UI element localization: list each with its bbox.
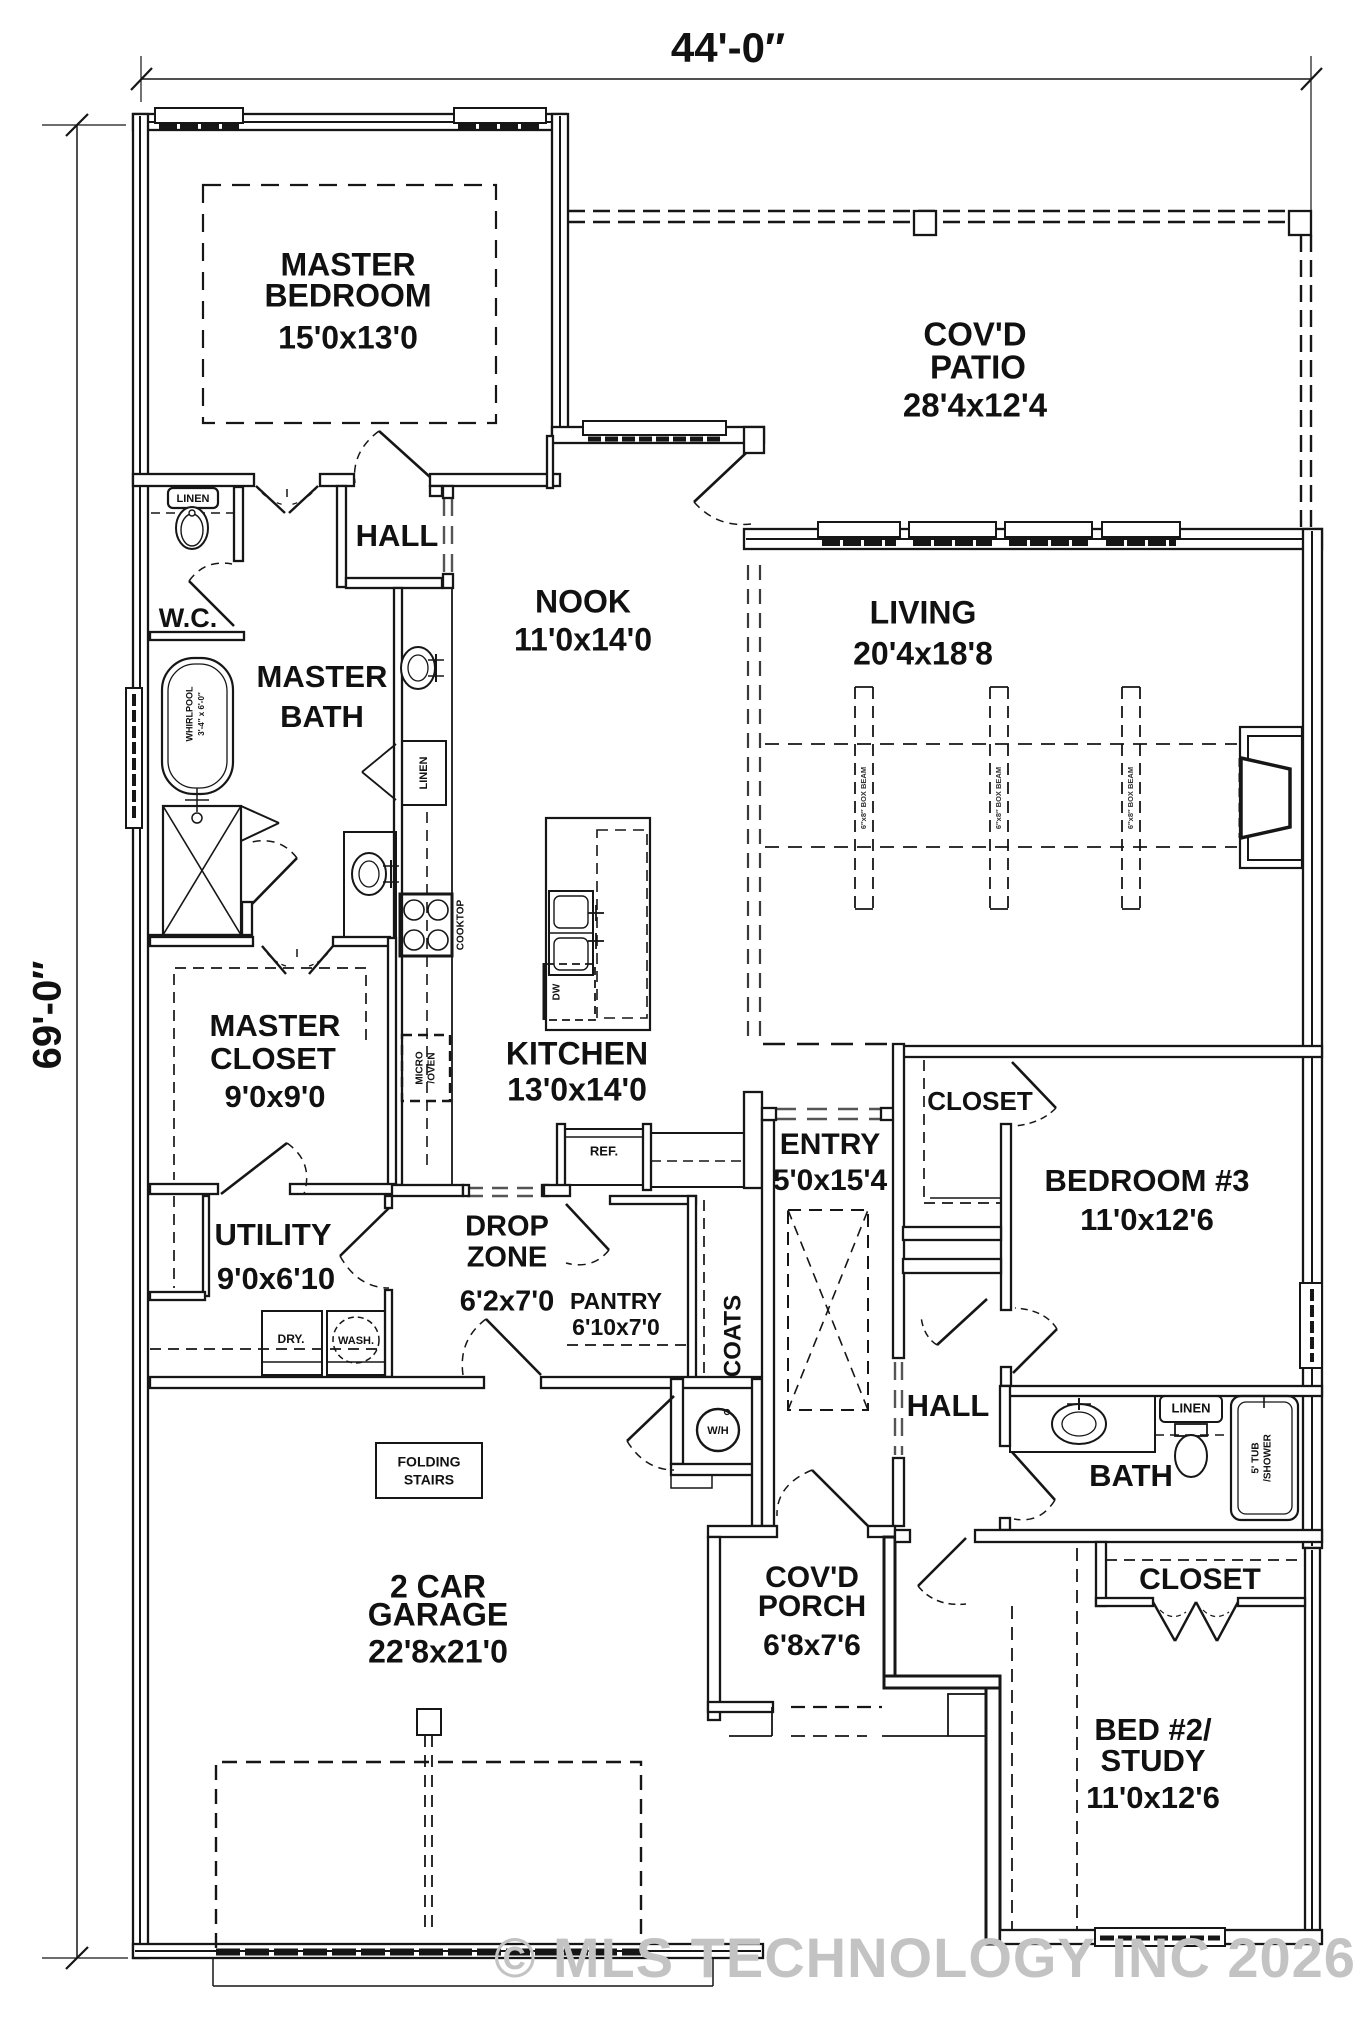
- svg-text:/OVEN: /OVEN: [427, 1052, 438, 1083]
- svg-text:LINEN: LINEN: [418, 756, 430, 789]
- svg-text:6'8x7'6: 6'8x7'6: [763, 1629, 861, 1662]
- svg-text:PORCH: PORCH: [758, 1590, 866, 1623]
- svg-text:11'0x14'0: 11'0x14'0: [514, 621, 652, 657]
- svg-text:CLOSET: CLOSET: [927, 1086, 1033, 1116]
- svg-text:MASTER: MASTER: [210, 1008, 341, 1043]
- svg-text:ENTRY: ENTRY: [780, 1128, 881, 1161]
- svg-text:6″x8″ BOX BEAM: 6″x8″ BOX BEAM: [859, 767, 868, 829]
- svg-text:STAIRS: STAIRS: [404, 1472, 454, 1488]
- svg-text:44'-0″: 44'-0″: [671, 24, 785, 71]
- svg-text:© MLS TECHNOLOGY INC 2026: © MLS TECHNOLOGY INC 2026: [494, 1926, 1356, 1989]
- svg-text:BED #2/: BED #2/: [1094, 1712, 1212, 1747]
- svg-text:CLOSET: CLOSET: [210, 1041, 336, 1076]
- svg-text:9'0x9'0: 9'0x9'0: [225, 1079, 326, 1114]
- svg-text:CLOSET: CLOSET: [1139, 1563, 1261, 1596]
- svg-text:PANTRY: PANTRY: [570, 1288, 662, 1314]
- svg-text:9'0x6'10: 9'0x6'10: [217, 1261, 335, 1296]
- svg-text:69'-0″: 69'-0″: [26, 961, 70, 1070]
- svg-text:KITCHEN: KITCHEN: [506, 1035, 648, 1071]
- svg-text:WHIRLPOOL: WHIRLPOOL: [184, 686, 194, 741]
- svg-text:20'4x18'8: 20'4x18'8: [853, 635, 993, 671]
- svg-text:HALL: HALL: [907, 1388, 990, 1423]
- svg-text:STUDY: STUDY: [1100, 1743, 1205, 1778]
- svg-text:BATH: BATH: [1089, 1458, 1173, 1493]
- svg-text:11'0x12'6: 11'0x12'6: [1086, 1780, 1220, 1815]
- svg-text:6'2x7'0: 6'2x7'0: [460, 1286, 554, 1318]
- svg-text:15'0x13'0: 15'0x13'0: [278, 319, 418, 355]
- svg-text:28'4x12'4: 28'4x12'4: [903, 387, 1048, 424]
- svg-text:BATH: BATH: [280, 699, 364, 734]
- svg-text:WASH.: WASH.: [338, 1335, 374, 1347]
- svg-text:UTILITY: UTILITY: [214, 1217, 331, 1252]
- svg-text:11'0x12'6: 11'0x12'6: [1080, 1202, 1214, 1237]
- svg-text:FOLDING: FOLDING: [398, 1454, 461, 1470]
- svg-text:COOKTOP: COOKTOP: [456, 899, 467, 950]
- svg-text:REF.: REF.: [590, 1143, 618, 1158]
- svg-text:COATS: COATS: [719, 1295, 746, 1377]
- svg-text:BEDROOM: BEDROOM: [264, 277, 431, 313]
- svg-text:DRY.: DRY.: [278, 1332, 305, 1346]
- svg-text:MASTER: MASTER: [257, 659, 388, 694]
- svg-text:W/H: W/H: [707, 1425, 728, 1437]
- svg-text:6″x8″ BOX BEAM: 6″x8″ BOX BEAM: [994, 767, 1003, 829]
- svg-text:BEDROOM #3: BEDROOM #3: [1045, 1163, 1250, 1198]
- svg-text:NOOK: NOOK: [535, 583, 631, 619]
- svg-text:DROP: DROP: [465, 1211, 549, 1243]
- svg-text:LIVING: LIVING: [870, 594, 977, 630]
- svg-text:6″x8″ BOX BEAM: 6″x8″ BOX BEAM: [1126, 767, 1135, 829]
- svg-text:/SHOWER: /SHOWER: [1263, 1433, 1274, 1482]
- svg-text:22'8x21'0: 22'8x21'0: [368, 1633, 508, 1669]
- svg-text:5' TUB: 5' TUB: [1251, 1442, 1262, 1473]
- svg-text:6'10x7'0: 6'10x7'0: [572, 1314, 660, 1340]
- svg-text:LINEN: LINEN: [177, 493, 210, 505]
- svg-text:DW: DW: [552, 983, 563, 1000]
- svg-text:3'-4″ x 6'-0″: 3'-4″ x 6'-0″: [197, 692, 206, 736]
- svg-text:13'0x14'0: 13'0x14'0: [507, 1071, 647, 1107]
- svg-text:LINEN: LINEN: [1172, 1400, 1211, 1415]
- svg-text:COV'D: COV'D: [923, 316, 1026, 353]
- svg-text:5'0x15'4: 5'0x15'4: [773, 1164, 888, 1197]
- svg-text:GARAGE: GARAGE: [368, 1596, 508, 1632]
- svg-text:W.C.: W.C.: [159, 603, 218, 633]
- svg-text:PATIO: PATIO: [930, 349, 1026, 386]
- svg-text:HALL: HALL: [356, 518, 439, 553]
- svg-text:ZONE: ZONE: [467, 1242, 548, 1274]
- svg-text:MICRO: MICRO: [415, 1051, 426, 1085]
